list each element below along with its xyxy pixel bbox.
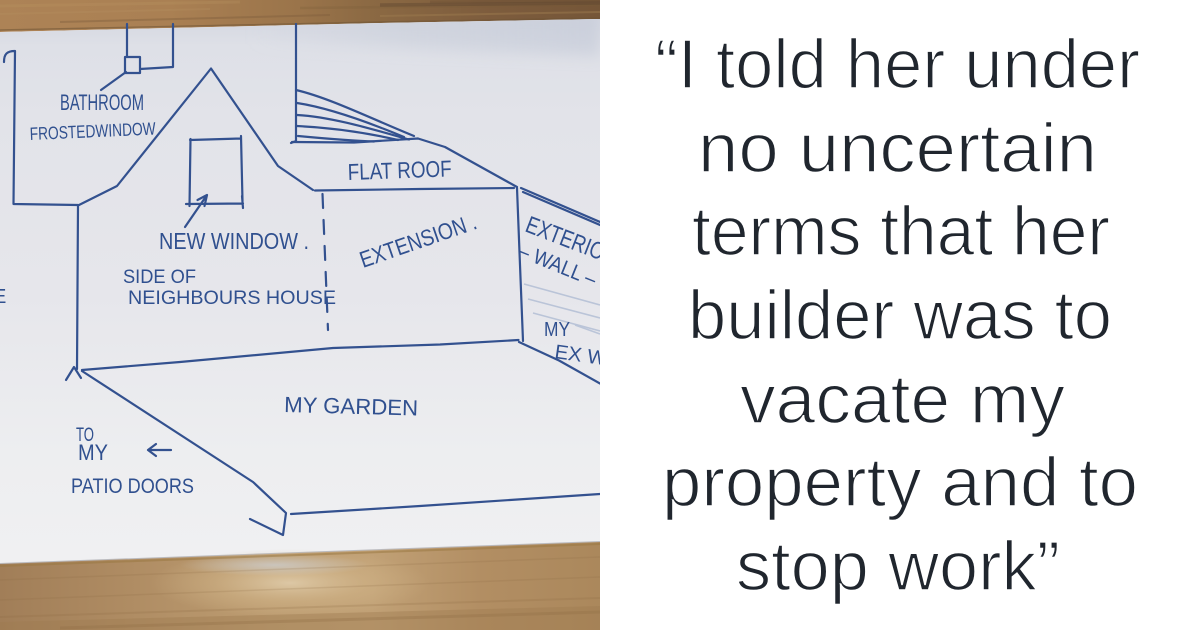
svg-text:NEW WINDOW .: NEW WINDOW . bbox=[159, 228, 309, 254]
svg-text:stop work”: stop work” bbox=[736, 527, 1060, 605]
svg-text:“I told her under: “I told her under bbox=[655, 25, 1140, 103]
svg-text:SIDE OF: SIDE OF bbox=[123, 267, 196, 288]
svg-text:no uncertain: no uncertain bbox=[698, 109, 1097, 187]
svg-text:PATIO DOORS: PATIO DOORS bbox=[71, 475, 194, 498]
svg-text:MY: MY bbox=[78, 440, 108, 465]
svg-text:builder was to: builder was to bbox=[688, 276, 1112, 354]
svg-text:vacate my: vacate my bbox=[740, 360, 1065, 438]
svg-text:property and to: property and to bbox=[662, 443, 1138, 521]
svg-text:terms that her: terms that her bbox=[692, 192, 1110, 270]
svg-text:BATHROOM: BATHROOM bbox=[60, 90, 144, 115]
svg-text:E: E bbox=[0, 286, 6, 308]
svg-text:MY: MY bbox=[544, 319, 570, 341]
svg-text:MY GARDEN: MY GARDEN bbox=[284, 392, 419, 420]
svg-text:FLAT ROOF: FLAT ROOF bbox=[347, 155, 452, 185]
svg-text:NEIGHBOURS HOUSE: NEIGHBOURS HOUSE bbox=[128, 288, 336, 309]
